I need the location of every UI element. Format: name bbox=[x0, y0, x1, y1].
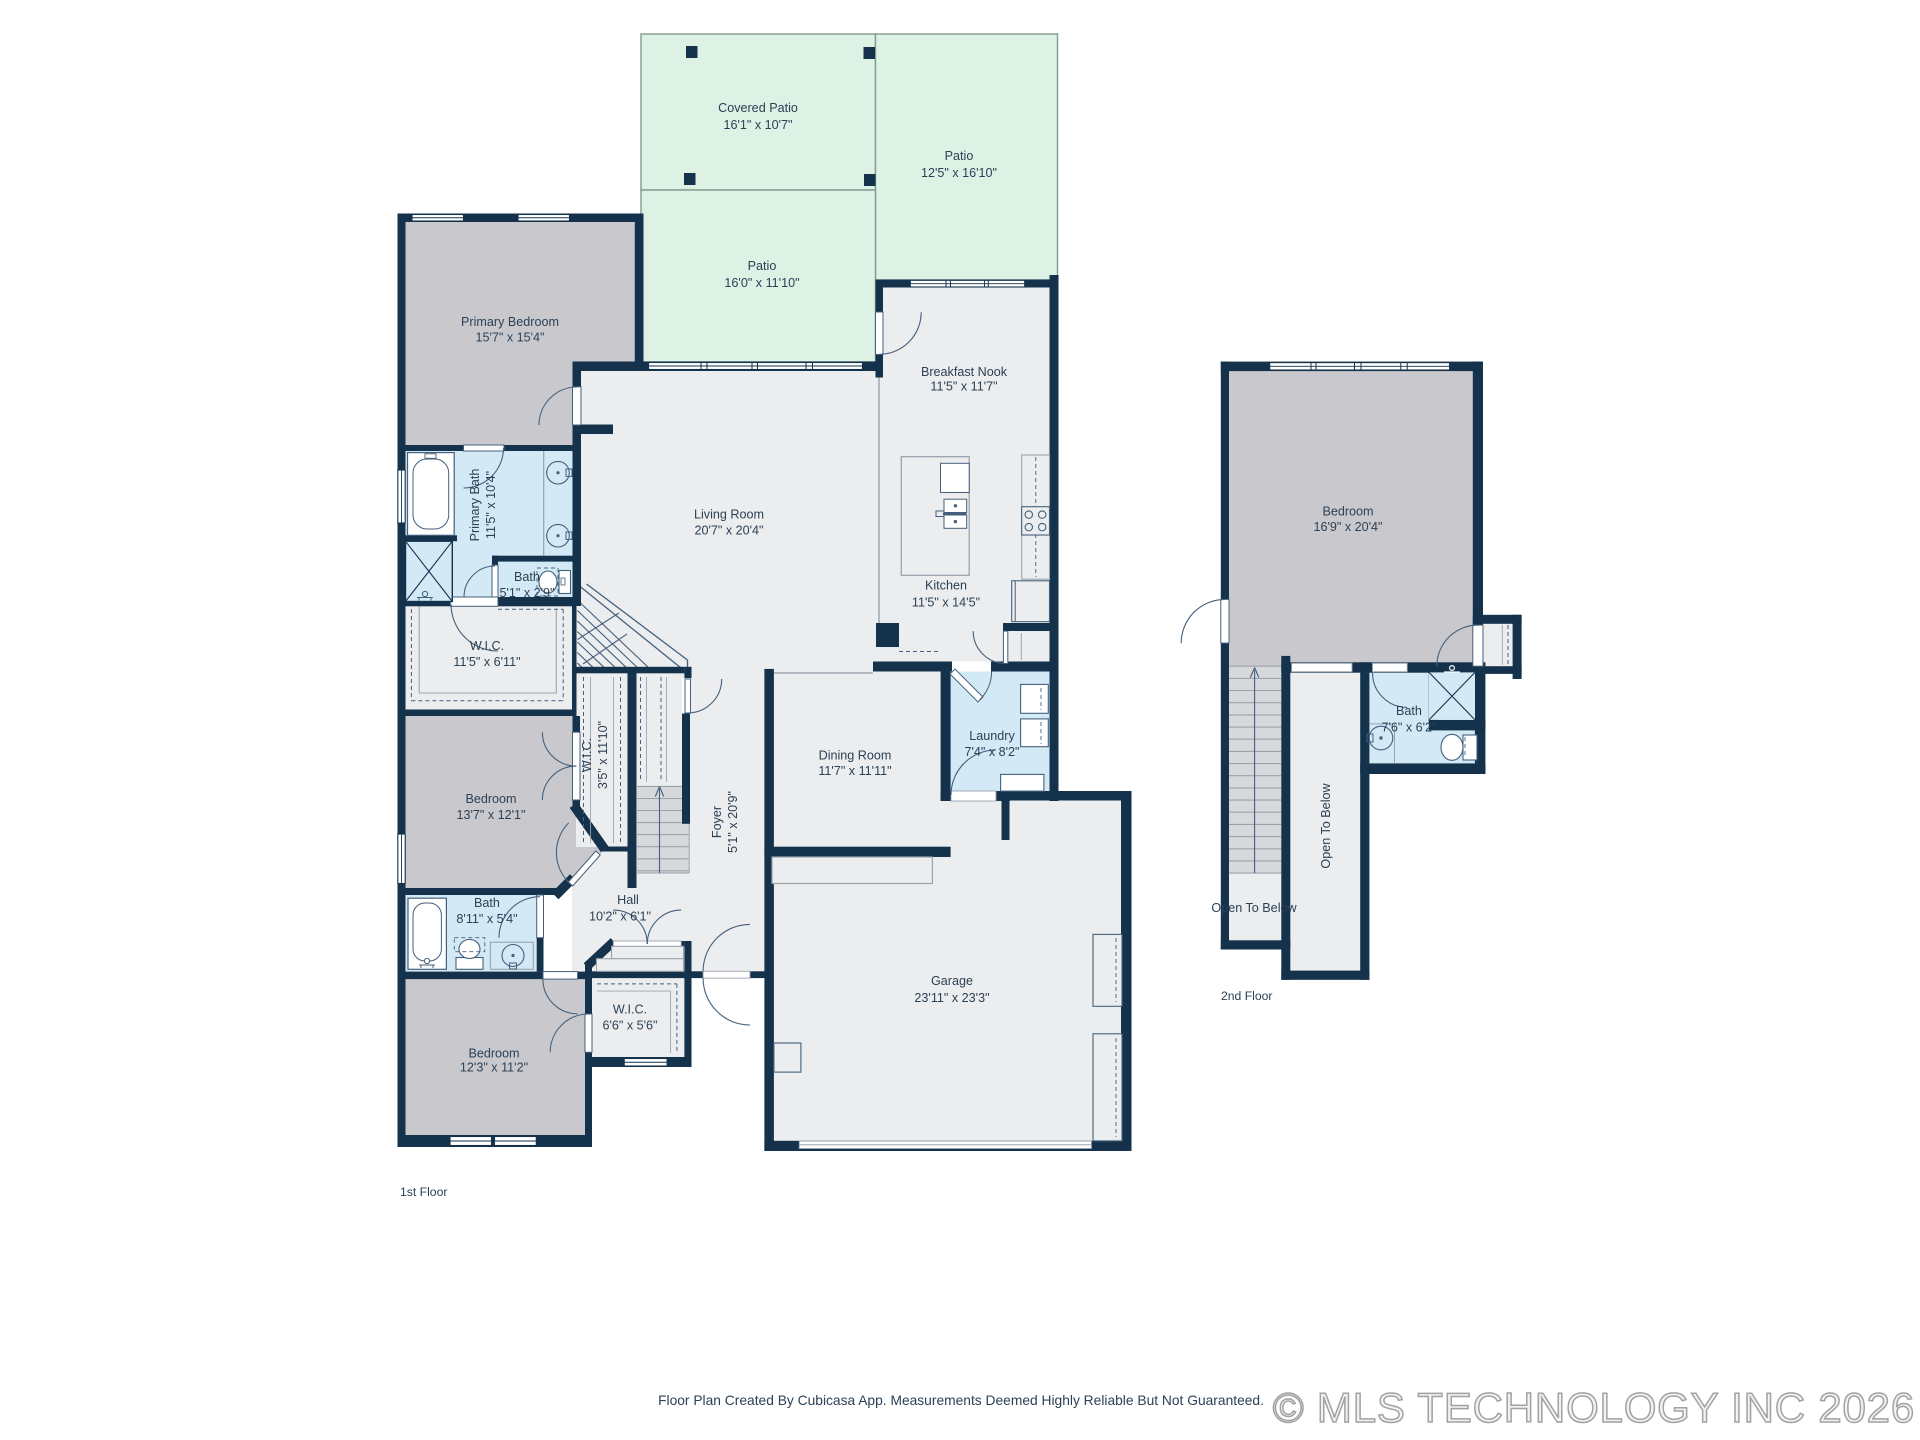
svg-text:5'1" x 20'9": 5'1" x 20'9" bbox=[726, 791, 740, 853]
svg-text:20'7" x 20'4": 20'7" x 20'4" bbox=[694, 524, 763, 538]
svg-text:15'7" x 15'4": 15'7" x 15'4" bbox=[475, 331, 544, 345]
svg-text:W.I.C.: W.I.C. bbox=[580, 738, 594, 772]
svg-text:Foyer: Foyer bbox=[710, 806, 724, 838]
svg-text:6'6" x 5'6": 6'6" x 5'6" bbox=[602, 1019, 657, 1033]
svg-text:3'5" x 11'10": 3'5" x 11'10" bbox=[596, 721, 610, 789]
svg-text:Patio: Patio bbox=[748, 259, 777, 273]
svg-text:11'5" x 11'7": 11'5" x 11'7" bbox=[930, 380, 997, 394]
svg-text:© MLS TECHNOLOGY INC 2026: © MLS TECHNOLOGY INC 2026 bbox=[1273, 1384, 1915, 1431]
svg-text:12'5" x 16'10": 12'5" x 16'10" bbox=[921, 166, 997, 180]
svg-text:16'9" x 20'4": 16'9" x 20'4" bbox=[1313, 520, 1382, 534]
svg-text:13'7" x 12'1": 13'7" x 12'1" bbox=[456, 808, 525, 822]
svg-text:11'5" x 6'11": 11'5" x 6'11" bbox=[453, 655, 520, 669]
svg-text:Bath: Bath bbox=[1396, 704, 1422, 718]
svg-text:Primary Bedroom: Primary Bedroom bbox=[461, 315, 559, 329]
svg-text:7'4" x 8'2": 7'4" x 8'2" bbox=[964, 745, 1019, 759]
svg-text:Bath: Bath bbox=[474, 896, 500, 910]
svg-text:5'1" x 2'9": 5'1" x 2'9" bbox=[499, 586, 554, 600]
svg-text:1st Floor: 1st Floor bbox=[400, 1185, 447, 1199]
svg-text:Bedroom: Bedroom bbox=[468, 1047, 519, 1061]
svg-text:11'7" x 11'11": 11'7" x 11'11" bbox=[818, 764, 891, 778]
svg-text:16'0" x 11'10": 16'0" x 11'10" bbox=[724, 276, 799, 290]
svg-text:12'3" x 11'2": 12'3" x 11'2" bbox=[460, 1061, 528, 1075]
svg-text:11'5" x 10'4": 11'5" x 10'4" bbox=[484, 471, 498, 539]
svg-text:Hall: Hall bbox=[617, 893, 639, 907]
svg-text:23'11" x 23'3": 23'11" x 23'3" bbox=[914, 991, 989, 1005]
svg-text:Breakfast Nook: Breakfast Nook bbox=[921, 365, 1008, 379]
svg-text:Covered Patio: Covered Patio bbox=[718, 101, 798, 115]
svg-text:Bedroom: Bedroom bbox=[1322, 505, 1373, 519]
svg-text:W.I.C.: W.I.C. bbox=[470, 639, 504, 653]
svg-text:Bath: Bath bbox=[514, 570, 540, 584]
svg-text:2nd Floor: 2nd Floor bbox=[1221, 989, 1273, 1003]
svg-text:Primary Bath: Primary Bath bbox=[468, 469, 482, 542]
svg-text:Open To Below: Open To Below bbox=[1319, 783, 1333, 869]
svg-text:16'1" x 10'7": 16'1" x 10'7" bbox=[723, 118, 792, 132]
svg-text:Open To Below: Open To Below bbox=[1211, 901, 1297, 915]
svg-text:Laundry: Laundry bbox=[969, 729, 1015, 743]
svg-text:7'6" x 6'2": 7'6" x 6'2" bbox=[1381, 721, 1436, 735]
svg-text:8'11" x 5'4": 8'11" x 5'4" bbox=[456, 912, 517, 926]
svg-text:Kitchen: Kitchen bbox=[925, 579, 967, 593]
svg-text:W.I.C.: W.I.C. bbox=[613, 1003, 647, 1017]
svg-text:Dining Room: Dining Room bbox=[819, 749, 892, 763]
svg-text:Patio: Patio bbox=[945, 149, 974, 163]
svg-text:Living Room: Living Room bbox=[694, 508, 764, 522]
svg-text:Garage: Garage bbox=[931, 974, 973, 988]
svg-text:Bedroom: Bedroom bbox=[465, 792, 516, 806]
svg-text:Floor Plan Created By Cubicasa: Floor Plan Created By Cubicasa App. Meas… bbox=[658, 1393, 1264, 1408]
svg-text:11'5" x 14'5": 11'5" x 14'5" bbox=[912, 596, 980, 610]
svg-text:10'2" x 6'1": 10'2" x 6'1" bbox=[589, 910, 651, 924]
